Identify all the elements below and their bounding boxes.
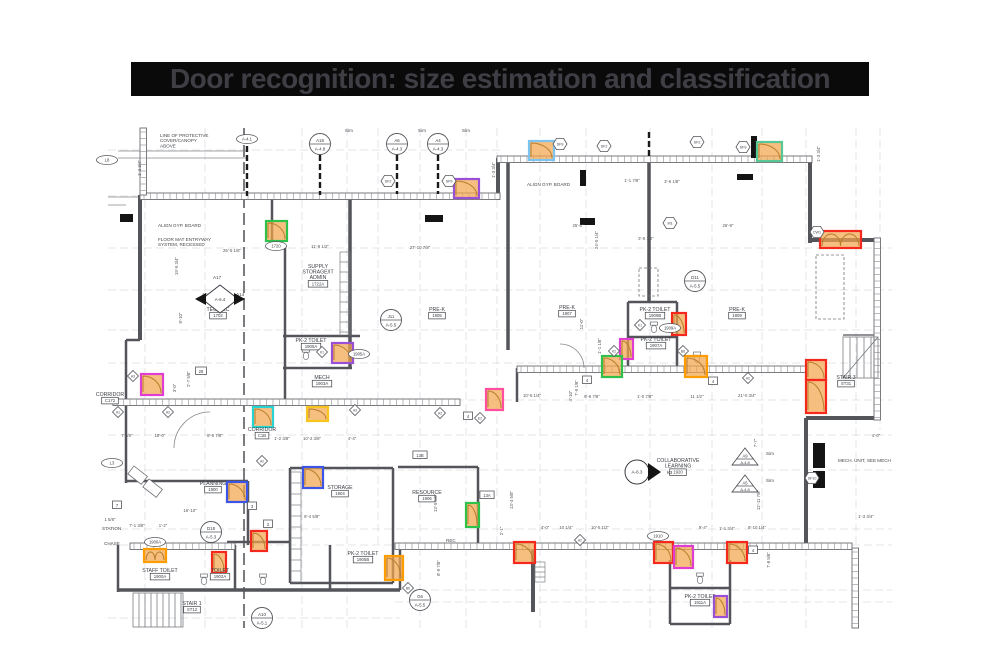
dimension: 4'-4": [348, 436, 357, 441]
dimension: 11 1/2": [690, 394, 704, 399]
plan-text: 1910: [653, 534, 663, 539]
annotation: A17: [213, 275, 222, 280]
wall-fill: [425, 215, 443, 222]
detection-box-red: [806, 380, 826, 413]
annotation: ALIGN GYP. BOARD: [527, 182, 571, 187]
dimension: 8'-10 1/4": [748, 525, 767, 530]
plan-text: B6: [406, 586, 410, 590]
annotation: Sim: [345, 128, 353, 133]
toilet-fixture: [697, 576, 703, 583]
dimension: 1'-3 3/4": [491, 162, 496, 178]
dimension: 1'-3 3/4": [816, 146, 821, 162]
plan-text: A-6.3: [632, 470, 643, 475]
wall-hatched: [517, 366, 806, 373]
room-number: 1902A: [214, 574, 227, 579]
detection-box-sky: [529, 141, 554, 160]
dimension: 19'-5 3/4": [174, 256, 179, 275]
plan-text: SF9: [446, 180, 453, 184]
page: Door recognition: size estimation and cl…: [0, 0, 1000, 658]
dimension: 1'-1 3/4": [719, 526, 735, 531]
plan-text: A2: [260, 459, 264, 463]
plan-text: A2: [166, 410, 170, 414]
toilet-fixture: [201, 574, 208, 577]
dimension: 4'-0": [872, 433, 881, 438]
detection-box-red: [727, 542, 747, 563]
callout-wedge: [195, 293, 206, 305]
plan-text: A5: [742, 481, 748, 486]
detection-box-red: [654, 542, 673, 563]
toilet-fixture: [651, 322, 658, 325]
dimension: 13'-5 5/8": [433, 493, 438, 512]
plan-text: SF9: [740, 146, 747, 150]
wall-hatched: [113, 399, 460, 406]
annotation: Sim: [418, 128, 426, 133]
plan-text: K1: [638, 323, 642, 327]
dimension: 2'-7 5/8": [186, 371, 191, 387]
plan-text: 28: [199, 369, 204, 374]
annotation: CHASE: [104, 541, 120, 546]
room-number: 1905: [432, 313, 442, 318]
room-number: 1911A: [694, 600, 706, 605]
room-number: ST31: [841, 381, 852, 386]
room-number: 1906: [422, 496, 432, 501]
detection-box-orange: [685, 356, 707, 377]
dimension: 9'-4": [699, 525, 708, 530]
annotation: ABOVE: [160, 143, 176, 148]
plan-text: A6: [394, 138, 400, 143]
door-swing-arc: [560, 344, 584, 368]
dimension: 7'-7": [753, 438, 758, 447]
plan-text: 13B: [416, 453, 424, 458]
plan-text: SF9: [557, 143, 564, 147]
plan-text: A-5.5: [690, 284, 701, 289]
annotation: SYSTEM, RECESSED: [158, 242, 205, 247]
dimension: 1 5/8": [104, 517, 116, 522]
plan-text: K1: [320, 350, 324, 354]
dimension: 10 1/4": [559, 525, 573, 530]
wall-fill: [737, 174, 753, 180]
dimension: 1'-0 7/8": [637, 394, 653, 399]
dimension: 1'-3 3/4": [137, 160, 142, 176]
detection-box-pink: [486, 389, 503, 410]
annotation: Sim: [462, 128, 470, 133]
plan-text: SF2: [694, 141, 701, 145]
dimension: 7 7/8": [121, 433, 133, 438]
detection-box-blue: [227, 482, 247, 502]
plan-text: A10: [258, 612, 266, 617]
dimension: 18'-0": [155, 433, 166, 438]
stair-outline: [133, 593, 183, 627]
dimension: 1'-1 7/8": [624, 178, 640, 183]
room-number: 1900: [208, 487, 218, 492]
room-number: 1905B: [357, 557, 370, 562]
plan-text: A-5.5: [415, 603, 426, 608]
detection-box-green: [602, 356, 622, 377]
plan-text: A3: [353, 408, 357, 412]
plan-text: A3: [131, 374, 135, 378]
plan-text: A18: [316, 138, 324, 143]
plan-text: A-4.3: [433, 147, 444, 152]
room-number: 1909B: [649, 313, 662, 318]
detection-box-red: [514, 542, 535, 563]
dimension: 1'-1 1/8": [597, 338, 602, 354]
plan-text: A-5.1: [257, 621, 268, 626]
detection-box-mint: [757, 142, 782, 161]
room-number: 1702: [213, 313, 223, 318]
dimension: 1'-3 3/4": [858, 514, 874, 519]
room-number: ST12: [187, 607, 198, 612]
dimension: 25'-5": [573, 223, 584, 228]
plan-text: A2: [438, 411, 442, 415]
room-number: 1909: [732, 313, 742, 318]
dimension: 10'-2 3/8": [303, 436, 322, 441]
plan-text: A-4.8: [740, 487, 749, 492]
dimension: 11'-0": [579, 318, 584, 329]
dimension: 7'-1 3/8": [129, 523, 145, 528]
wall-fill: [580, 170, 586, 186]
plan-text: A-6.4: [215, 297, 226, 302]
room-number: 1903A: [316, 381, 329, 386]
plan-text: A-4.1: [242, 137, 253, 142]
plan-geometry: [843, 337, 878, 378]
dimension: 16'-10": [183, 508, 197, 513]
plan-text: A-4.8: [315, 147, 326, 152]
dimension: 1'-2 3/8": [274, 436, 290, 441]
plan-text: 1909A: [664, 326, 676, 331]
plan-text: G6: [417, 594, 423, 599]
wall-fill: [813, 443, 825, 468]
dimension: 10'-5 1/2": [591, 525, 610, 530]
dimension: 4'-10": [568, 390, 573, 401]
dimension: 10'-5 1/4": [523, 393, 542, 398]
dimension: 25'-5 1/8": [223, 248, 242, 253]
wall-hatched: [852, 548, 859, 628]
annotation: MECH. UNIT, SEE MECH: [838, 458, 891, 463]
wall-fill: [120, 214, 133, 222]
dimension: 9'-6 7/8": [584, 394, 600, 399]
plan-text: SF2: [601, 145, 608, 149]
dimension: 3'-9 1/2": [638, 236, 654, 241]
plan-text: A-5.5: [386, 323, 397, 328]
door-swing-arc: [174, 412, 210, 448]
plan-text: 13A: [483, 493, 491, 498]
wall-hatched: [874, 238, 881, 420]
annotation: STATION: [102, 526, 121, 531]
plan-text: L3: [110, 461, 115, 466]
plan-text: A-4.3: [392, 147, 403, 152]
dimension: 8'-6 7/8": [207, 433, 223, 438]
detection-box-red: [806, 360, 826, 380]
dimension: 2'-1": [499, 526, 504, 535]
plan-text: 1720: [271, 244, 281, 249]
annotation: ALIGN GYP. BOARD: [158, 223, 202, 228]
room-number: 1900A: [154, 574, 167, 579]
dimension: 13'-4 5/8": [509, 490, 514, 509]
dashed-outline: [816, 255, 844, 319]
detection-box-cyan: [253, 407, 273, 427]
plan-text: SF2: [385, 180, 392, 184]
dimension: 8'-4 5/8": [304, 514, 320, 519]
dimension: 4'-0": [541, 525, 550, 530]
detection-box-green: [266, 221, 287, 241]
plan-text: D11: [691, 275, 699, 280]
dimension: 24'-5 1/4": [594, 230, 599, 249]
plan-text: 1905A: [353, 352, 365, 357]
room-number: 1905A: [305, 344, 318, 349]
dimension: 8'-9 7/8": [436, 560, 441, 576]
toilet-fixture: [260, 574, 267, 577]
plan-text: J11: [388, 314, 395, 319]
plan-text: E2: [478, 416, 482, 420]
dimension: 1'-2": [159, 523, 168, 528]
plan-text: D18: [207, 526, 216, 531]
plan-text: 1900A: [149, 540, 161, 545]
dimension: 8'-10": [178, 312, 183, 323]
toilet-fixture: [201, 577, 207, 584]
plan-text: SF10: [808, 477, 817, 481]
dimension: 3'-0": [172, 383, 177, 392]
detection-box-magenta: [674, 546, 693, 568]
room-number: 1907A: [650, 343, 663, 348]
wall-hatched: [395, 543, 852, 550]
plan-text: M1: [667, 222, 672, 226]
callout-arrow: [648, 463, 661, 481]
room-number: C172: [105, 398, 116, 403]
plan-text: A2: [578, 538, 582, 542]
floor-plan: SUPPLYSTORAGE/ITADMIN1722APRE-K1905PRE-K…: [0, 0, 1000, 658]
annotation: Sim: [766, 451, 774, 456]
plan-text: A9: [742, 454, 748, 459]
plan-text: A-5.3: [206, 535, 217, 540]
dimension: 7'-9 1/8": [574, 380, 579, 396]
annotation: Sim: [766, 478, 774, 483]
plan-text: A2: [746, 376, 750, 380]
annotation: REC: [446, 538, 456, 543]
detection-box-blue: [303, 467, 323, 488]
room-number: 1722A: [312, 281, 325, 286]
plan-text: CW1: [813, 231, 821, 235]
plan-text: A4: [435, 138, 441, 143]
detection-box-purple: [454, 179, 479, 198]
plan-text: L8: [105, 158, 110, 163]
dimension: 27'-10 7/8": [410, 245, 431, 250]
room-number: 1907: [562, 311, 572, 316]
plan-text: A-4.8: [740, 460, 749, 465]
dimension: 21'-0 3/4": [738, 393, 757, 398]
dimension: 12'-11 7/8": [756, 489, 761, 510]
plan-text: A1: [116, 410, 120, 414]
detection-box-magenta: [141, 374, 163, 395]
toilet-fixture: [697, 573, 704, 576]
dimension: 7'-8 5/8": [766, 552, 771, 568]
plan-text: K3: [667, 470, 673, 475]
plan-text: B6: [681, 349, 685, 353]
room-number: C1B: [258, 433, 266, 438]
dimension: 3'-6 1/8": [664, 179, 680, 184]
detection-box-orange: [385, 556, 403, 580]
toilet-fixture: [303, 352, 309, 359]
toilet-fixture: [651, 325, 657, 332]
dimension: 11'-9 1/2": [311, 244, 329, 249]
toilet-fixture: [260, 577, 266, 584]
room-number: 1920: [673, 470, 683, 475]
toilet-fixture: [694, 352, 701, 355]
dimension: 26'-9": [723, 223, 734, 228]
room-number: 1904: [335, 491, 345, 496]
plan-text: K2: [612, 349, 616, 353]
